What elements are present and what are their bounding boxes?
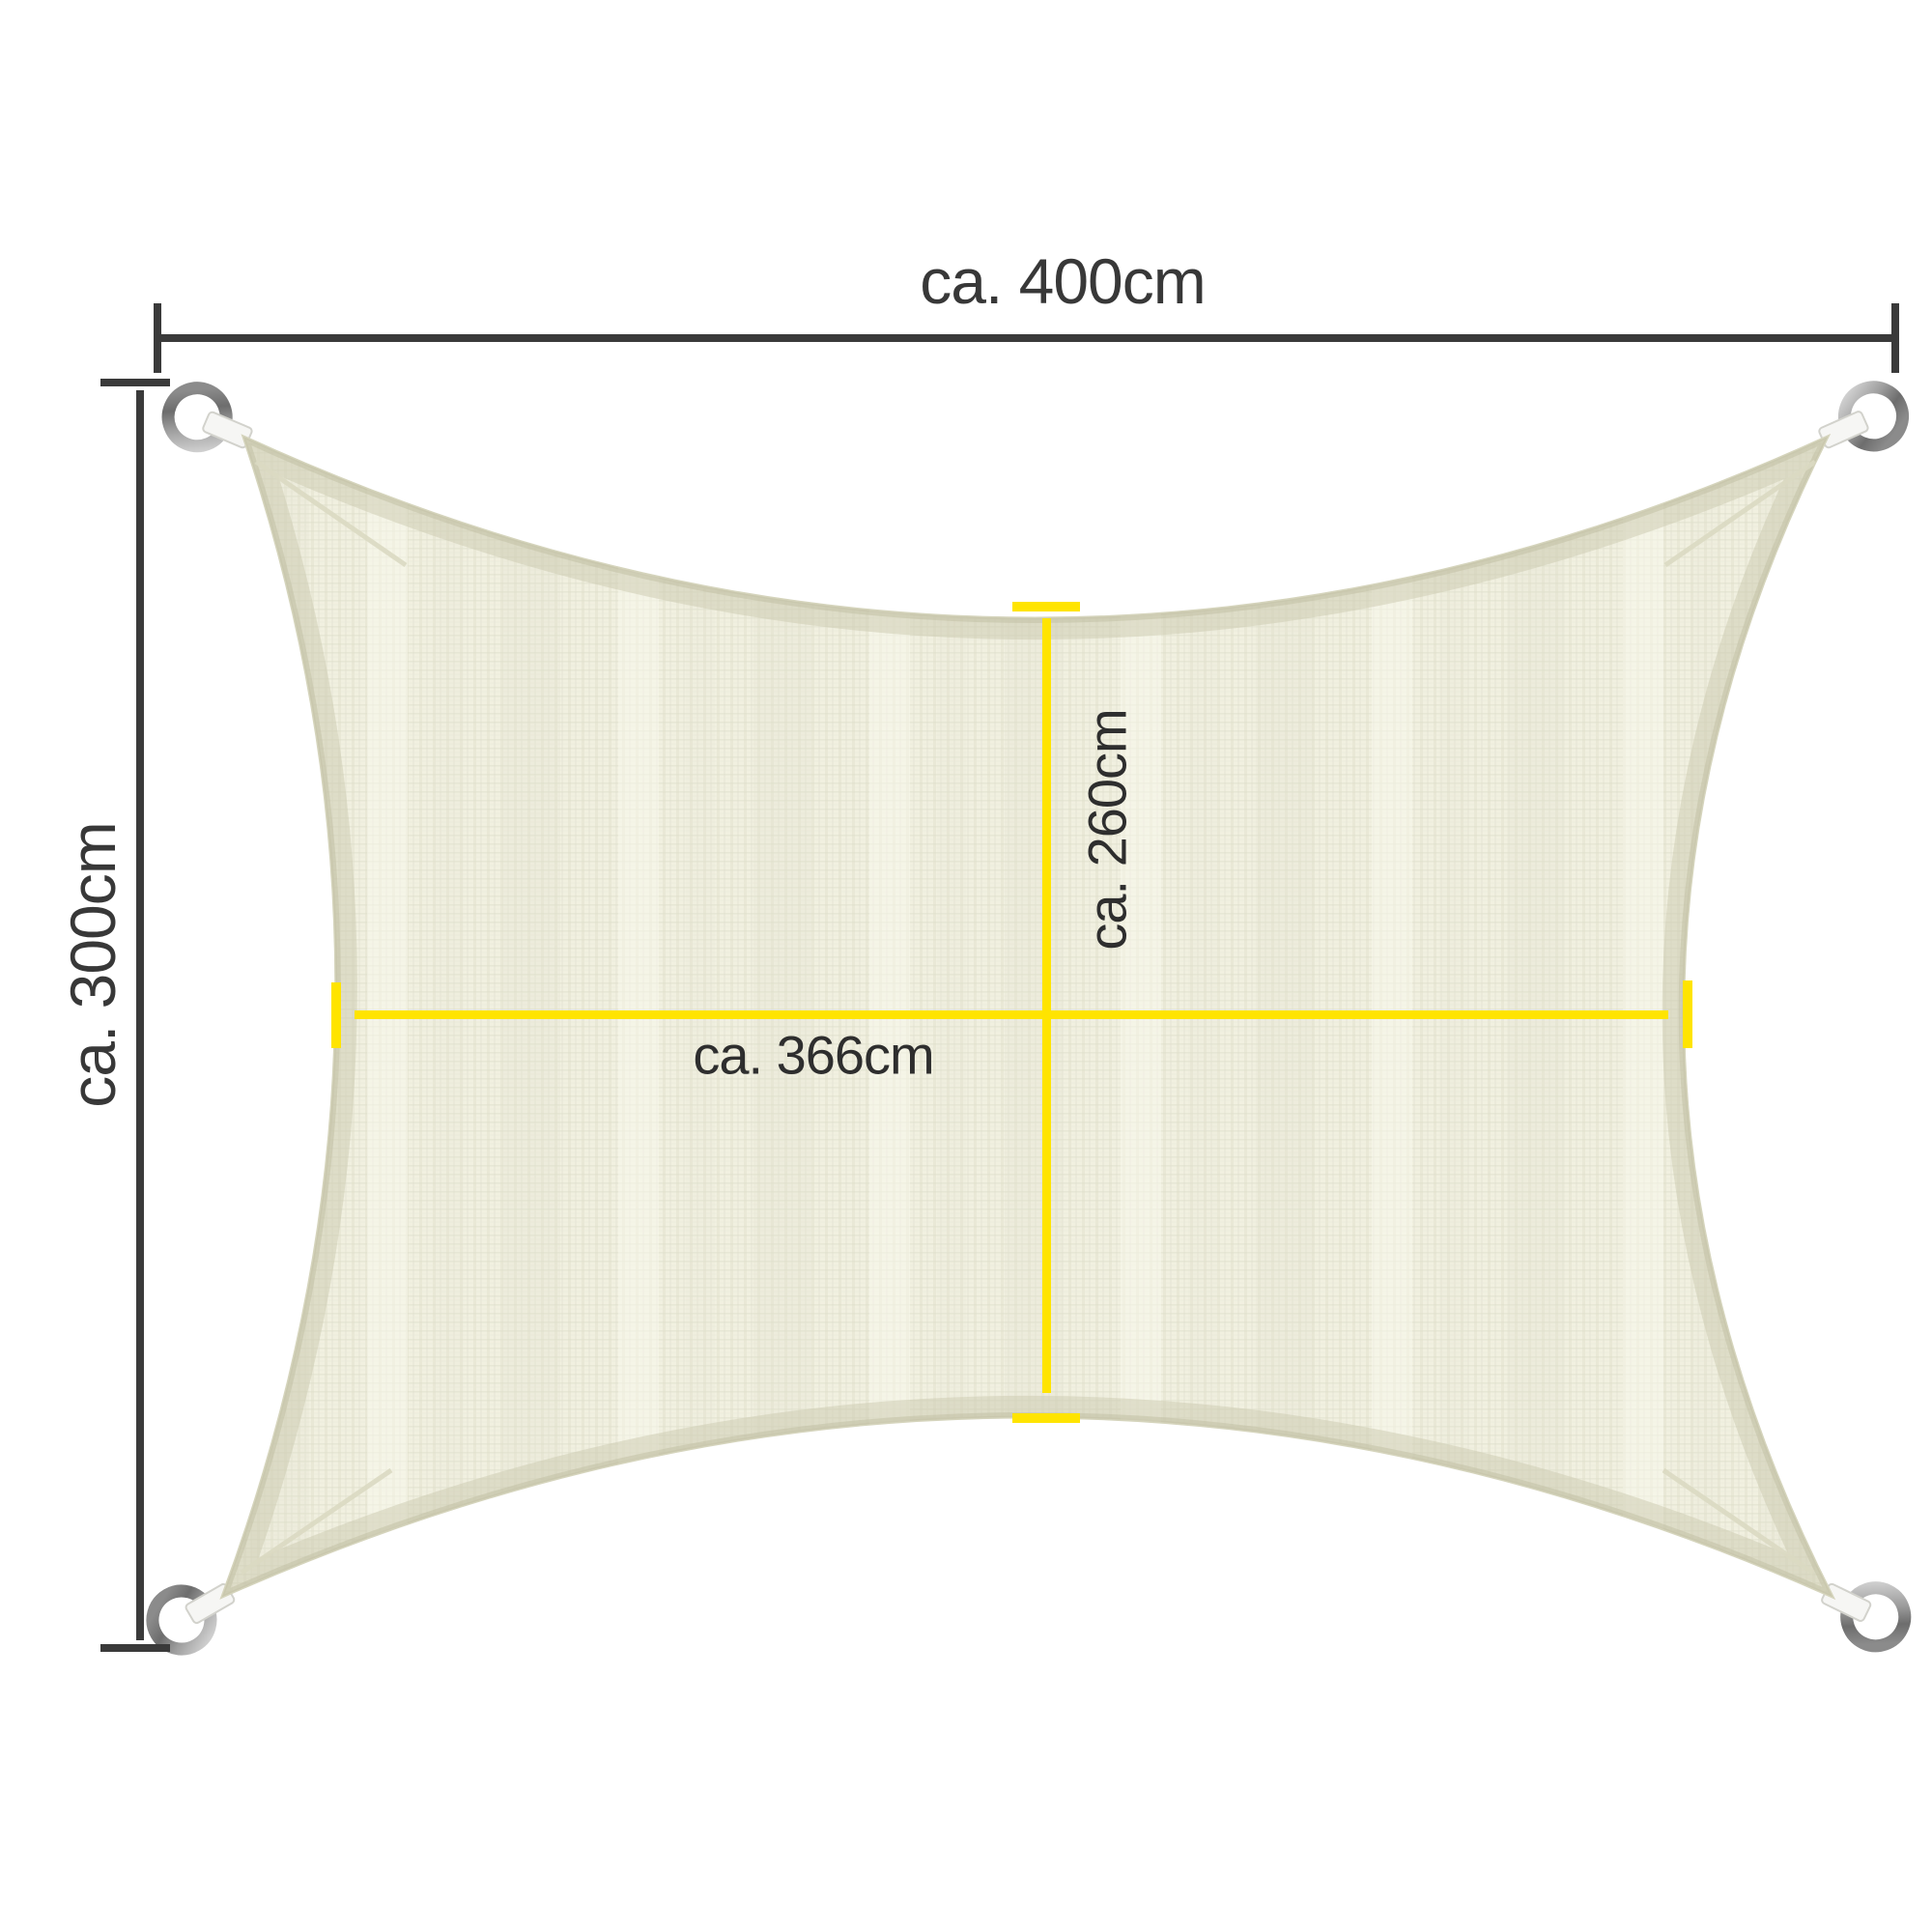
inner-height-tick-bottom <box>1012 1413 1080 1423</box>
height-dimension-label: ca. 300cm <box>56 822 129 1107</box>
width-dimension-tick-right <box>1891 303 1899 373</box>
d-ring-bottom-right-icon <box>1812 1566 1914 1656</box>
d-ring-top-right-icon <box>1810 378 1912 466</box>
height-dimension-tick-top <box>100 379 170 386</box>
shade-sail-dimension-diagram: ca. 400cm ca. 300cm ca. 260cm ca. 366cm <box>0 0 1932 1932</box>
inner-width-dimension-label: ca. 366cm <box>693 1024 933 1087</box>
inner-width-tick-right <box>1683 980 1692 1048</box>
width-dimension-label: ca. 400cm <box>920 244 1205 318</box>
d-ring-top-left-icon <box>159 379 260 466</box>
inner-height-dimension-label: ca. 260cm <box>1076 709 1139 950</box>
width-dimension-tick-left <box>154 303 161 373</box>
inner-height-tick-top <box>1012 602 1080 611</box>
height-dimension-tick-bottom <box>100 1644 170 1652</box>
inner-width-tick-left <box>331 982 341 1048</box>
